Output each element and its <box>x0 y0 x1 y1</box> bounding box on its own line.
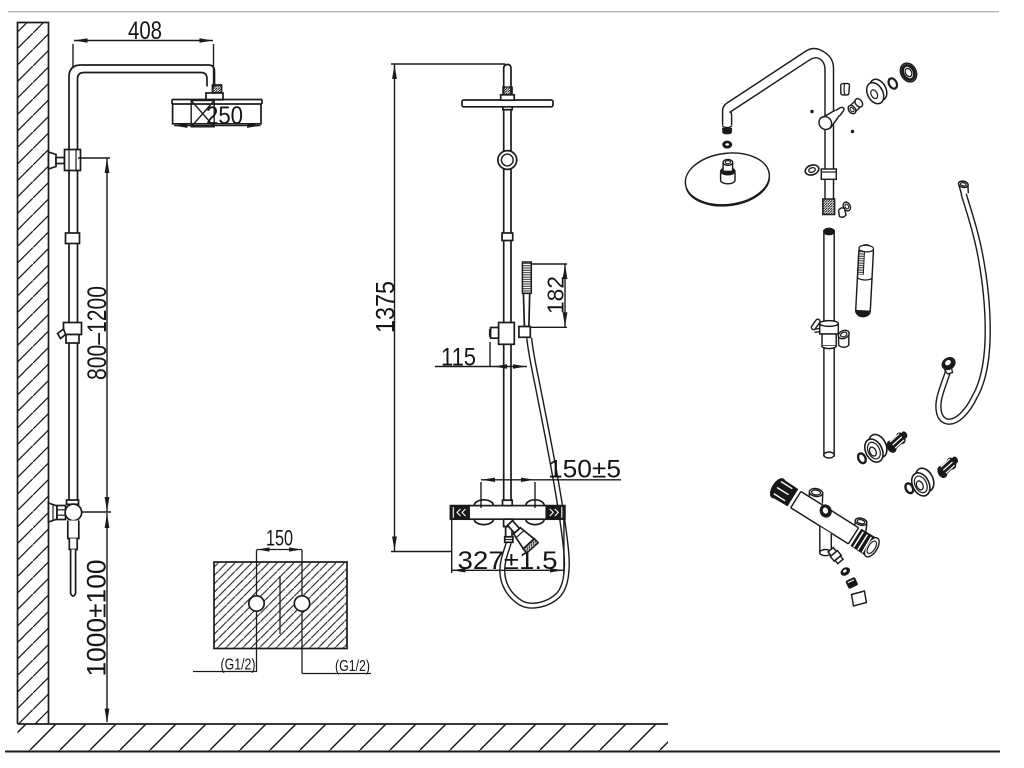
svg-text:(G1/2): (G1/2) <box>221 657 256 674</box>
svg-text:250: 250 <box>206 102 243 130</box>
svg-text:1000±100: 1000±100 <box>82 560 112 677</box>
svg-text:327±1.5: 327±1.5 <box>458 547 558 575</box>
svg-text:150: 150 <box>266 526 293 551</box>
svg-text:1375: 1375 <box>370 281 400 333</box>
svg-text:115: 115 <box>441 344 476 372</box>
svg-text:182: 182 <box>543 276 569 314</box>
svg-text:800–1200: 800–1200 <box>82 286 112 380</box>
svg-text:(G1/2): (G1/2) <box>335 658 370 675</box>
svg-text:408: 408 <box>128 17 162 45</box>
svg-text:150±5: 150±5 <box>548 456 621 484</box>
